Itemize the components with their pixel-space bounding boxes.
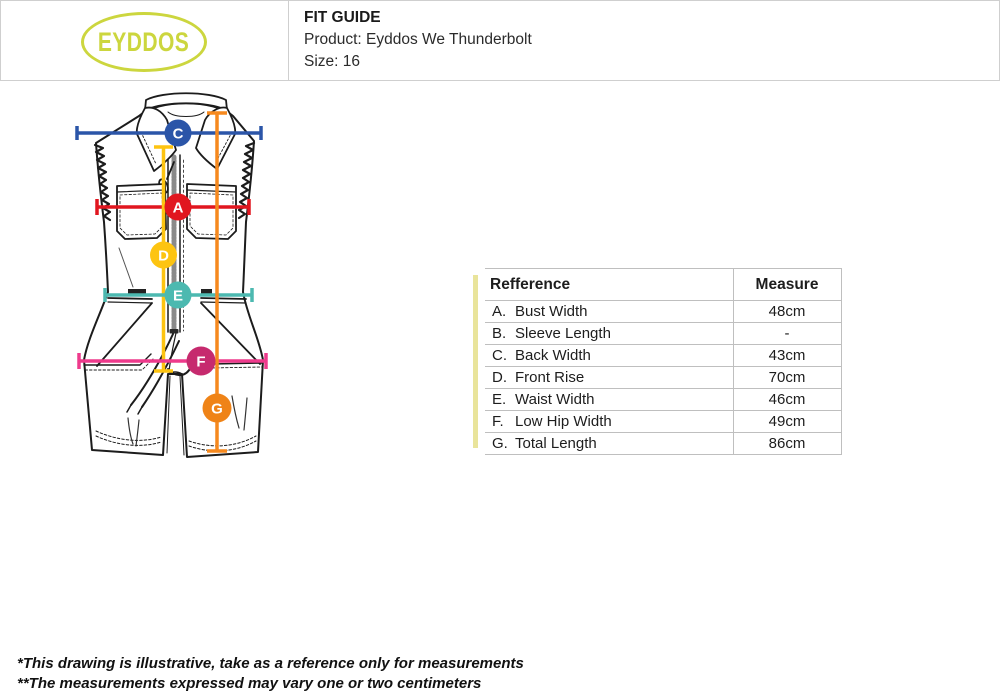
product-line: Product: Eyddos We Thunderbolt (304, 29, 532, 51)
footnote-2: **The measurements expressed may vary on… (17, 674, 524, 693)
marker-c-letter: C (173, 126, 184, 143)
header-text-block: FIT GUIDE Product: Eyddos We Thunderbolt… (304, 7, 532, 73)
table-row: C.Back Width 43cm (485, 345, 841, 367)
row-measure-cell: 70cm (733, 367, 841, 389)
marker-e-letter: E (173, 288, 183, 305)
row-measure-cell: 48cm (733, 301, 841, 323)
row-reference-cell: B.Sleeve Length (485, 323, 733, 345)
marker-e-badge: E (165, 282, 192, 309)
marker-g-badge: G (203, 394, 232, 423)
table-header-reference: Refference (485, 269, 733, 301)
table-header-row: Refference Measure (485, 269, 841, 301)
row-measure-cell: 46cm (733, 389, 841, 411)
zipper-stop (170, 329, 179, 334)
row-reference-cell: G.Total Length (485, 433, 733, 455)
brand-logo-text: EYDDOS (98, 27, 189, 58)
row-reference-cell: A.Bust Width (485, 301, 733, 323)
row-ref-letter: E. (492, 391, 515, 408)
measurements-table: Refference Measure A.Bust Width 48cm B.S… (485, 268, 842, 455)
table-header-measure: Measure (733, 269, 841, 301)
row-label: Front Rise (515, 369, 584, 386)
table-row: B.Sleeve Length - (485, 323, 841, 345)
marker-g-letter: G (211, 401, 223, 418)
chest-pocket-right (187, 184, 236, 239)
fit-guide-page: EYDDOS FIT GUIDE Product: Eyddos We Thun… (0, 0, 1000, 693)
footnote-1: *This drawing is illustrative, take as a… (17, 654, 524, 674)
table-accent-bar (473, 275, 478, 448)
row-measure-cell: 86cm (733, 433, 841, 455)
row-label: Bust Width (515, 303, 588, 320)
row-ref-letter: F. (492, 413, 515, 430)
row-label: Total Length (515, 435, 597, 452)
marker-a-badge: A (165, 194, 192, 221)
footnotes: *This drawing is illustrative, take as a… (17, 654, 524, 693)
marker-a-letter: A (173, 200, 184, 217)
table-row: F.Low Hip Width 49cm (485, 411, 841, 433)
header: EYDDOS FIT GUIDE Product: Eyddos We Thun… (0, 0, 1000, 81)
row-reference-cell: E.Waist Width (485, 389, 733, 411)
marker-d-badge: D (150, 242, 177, 269)
marker-d-letter: D (158, 248, 169, 265)
size-line: Size: 16 (304, 51, 532, 73)
row-reference-cell: F.Low Hip Width (485, 411, 733, 433)
table-row: E.Waist Width 46cm (485, 389, 841, 411)
row-label: Waist Width (515, 391, 594, 408)
row-measure-cell: 43cm (733, 345, 841, 367)
marker-f-badge: F (187, 347, 216, 376)
row-ref-letter: D. (492, 369, 515, 386)
row-reference-cell: C.Back Width (485, 345, 733, 367)
garment-diagram: C A D E F G (50, 85, 290, 480)
row-ref-letter: B. (492, 325, 515, 342)
row-ref-letter: A. (492, 303, 515, 320)
page-title: FIT GUIDE (304, 7, 532, 29)
row-ref-letter: G. (492, 435, 515, 452)
table-row: D.Front Rise 70cm (485, 367, 841, 389)
marker-c-badge: C (165, 120, 192, 147)
header-divider (288, 1, 289, 81)
row-label: Low Hip Width (515, 413, 612, 430)
row-ref-letter: C. (492, 347, 515, 364)
marker-f-letter: F (196, 354, 205, 371)
table-row: A.Bust Width 48cm (485, 301, 841, 323)
row-reference-cell: D.Front Rise (485, 367, 733, 389)
brand-logo: EYDDOS (81, 12, 207, 72)
chest-pocket-left (117, 184, 166, 239)
row-label: Sleeve Length (515, 325, 611, 342)
row-measure-cell: - (733, 323, 841, 345)
row-label: Back Width (515, 347, 591, 364)
table-row: G.Total Length 86cm (485, 433, 841, 455)
row-measure-cell: 49cm (733, 411, 841, 433)
